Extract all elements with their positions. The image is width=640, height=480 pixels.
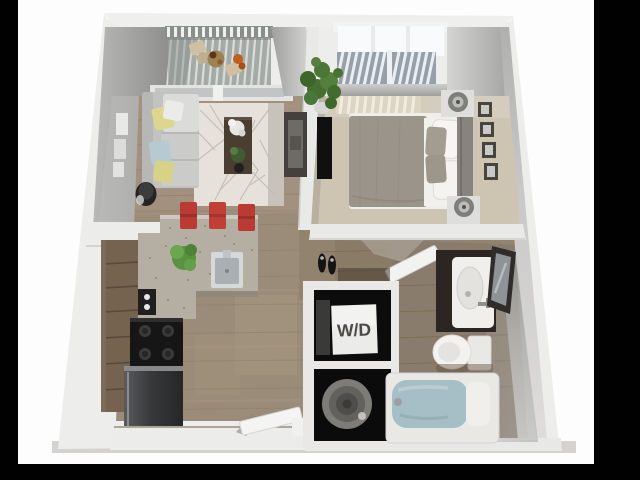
svg-text:W/D: W/D [337, 319, 372, 340]
